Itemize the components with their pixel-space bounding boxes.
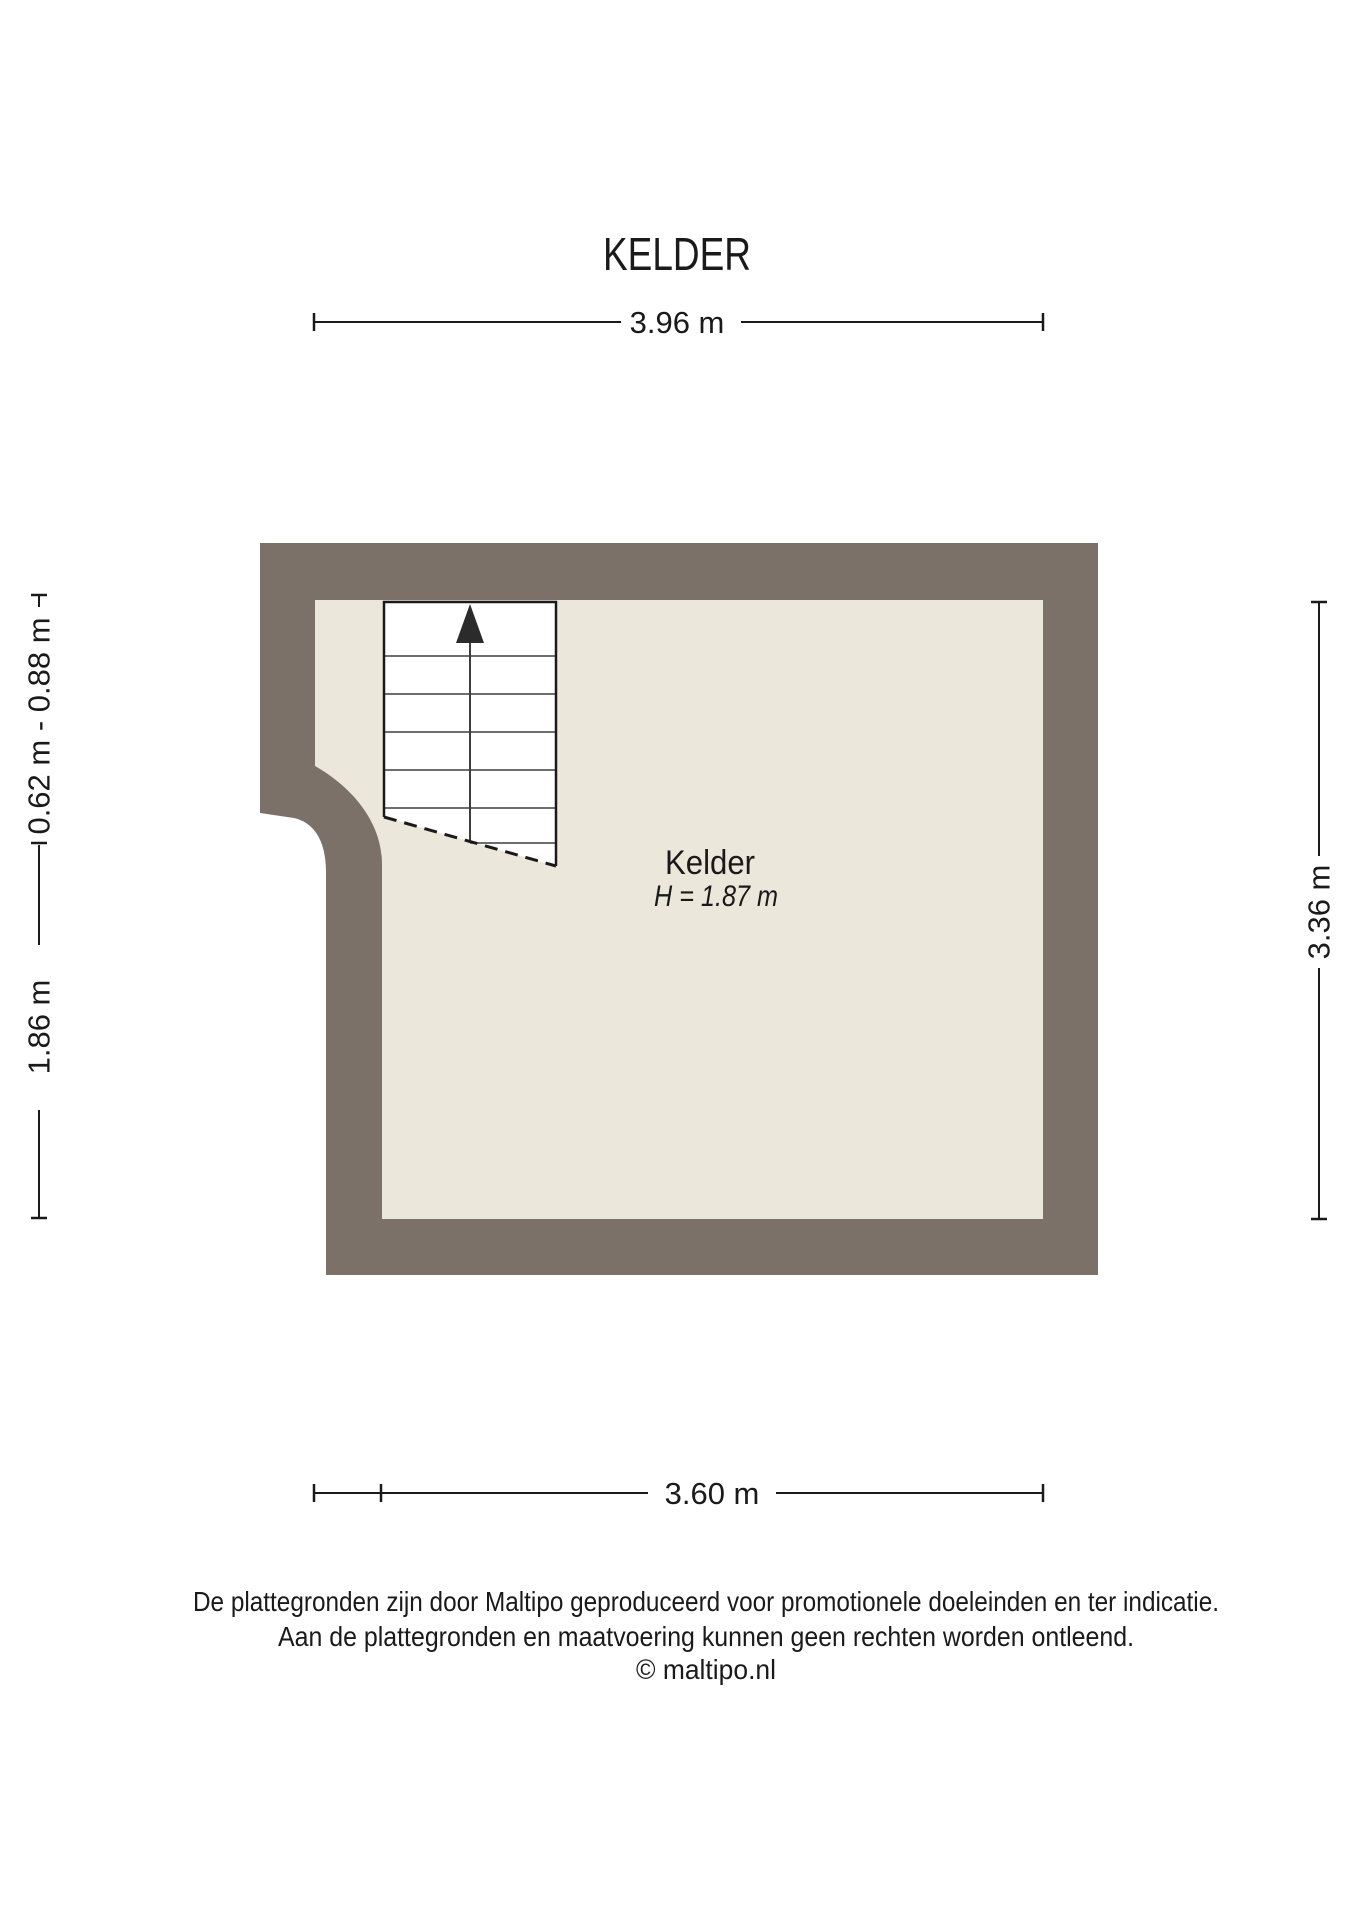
dimension-bottom: 3.60 m xyxy=(314,1476,1043,1511)
dimension-left: 0.62 m - 0.88 m 1.86 m xyxy=(22,595,57,1218)
floor-plan: Kelder H = 1.87 m xyxy=(260,543,1098,1275)
disclaimer-line-2: Aan de plattegronden en maatvoering kunn… xyxy=(278,1621,1134,1652)
room-height-label: H = 1.87 m xyxy=(654,880,778,913)
dim-bottom-label: 3.60 m xyxy=(665,1476,760,1511)
page-title: KELDER xyxy=(603,228,751,280)
dim-top-label: 3.96 m xyxy=(630,305,725,340)
floor-plan-page: KELDER 3.96 m xyxy=(0,0,1358,1920)
dimension-top: 3.96 m xyxy=(314,305,1043,340)
dim-left-upper-label: 0.62 m - 0.88 m xyxy=(22,617,57,834)
floor-plan-canvas: KELDER 3.96 m xyxy=(0,0,1358,1920)
dim-right-label: 3.36 m xyxy=(1302,865,1337,960)
copyright-maltipo: © maltipo.nl xyxy=(636,1654,776,1685)
dimension-right: 3.36 m xyxy=(1302,602,1337,1219)
footer-disclaimer: De plattegronden zijn door Maltipo gepro… xyxy=(193,1586,1219,1685)
disclaimer-line-1: De plattegronden zijn door Maltipo gepro… xyxy=(193,1586,1219,1617)
dim-left-lower-label: 1.86 m xyxy=(22,980,57,1075)
room-name-label: Kelder xyxy=(665,844,755,882)
